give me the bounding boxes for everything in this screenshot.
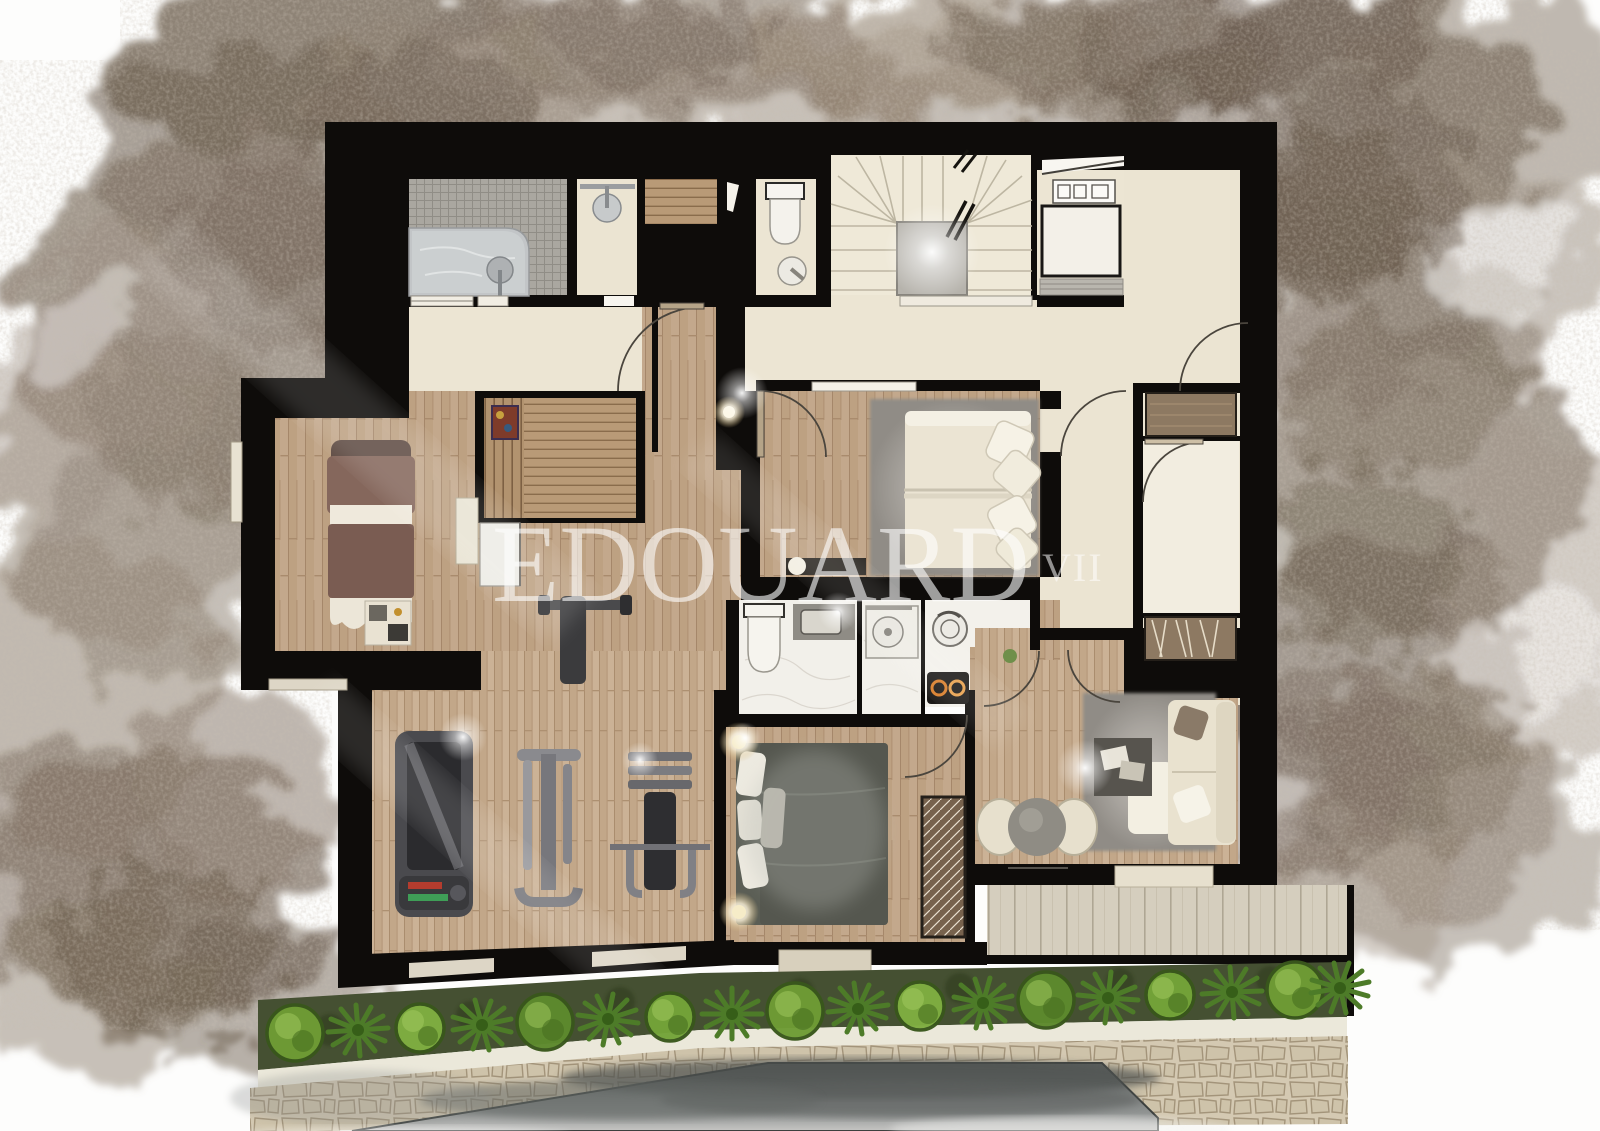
svg-text:EDOUARD: EDOUARD — [492, 503, 1030, 625]
svg-text:VII: VII — [1042, 545, 1104, 590]
